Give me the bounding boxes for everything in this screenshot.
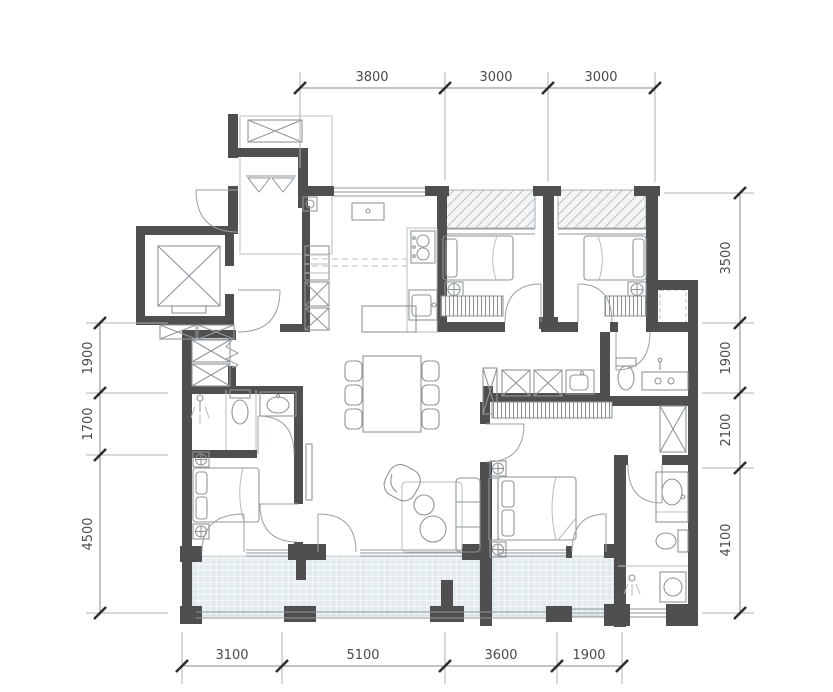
toilet: [230, 390, 250, 424]
dimensions-bottom: 3100 5100 3600 1900: [176, 632, 628, 684]
door-bathroom-shared: [616, 332, 650, 370]
dim-label: 2100: [719, 413, 734, 446]
door-master-entry: [486, 424, 524, 462]
bedroom-top-left: [441, 236, 513, 316]
door-master-balcony: [572, 514, 606, 552]
entry-closet: [192, 340, 230, 386]
bay-window-bedroom2: [558, 190, 646, 234]
master-bathroom: [618, 472, 688, 602]
bedroom-left-window: [246, 550, 288, 556]
kitchen: [303, 197, 437, 332]
dim-label: 3800: [355, 70, 388, 85]
bathroom-left: [191, 390, 296, 450]
dim-label: 3000: [479, 70, 512, 85]
washer: [660, 572, 686, 602]
dim-label: 3500: [719, 241, 734, 274]
dim-label: 1700: [81, 407, 96, 440]
dim-label: 3100: [215, 648, 248, 663]
dimensions-top: 3800 3000 3000: [294, 70, 661, 182]
sink: [260, 392, 296, 416]
water-heater: [352, 203, 384, 220]
door-foyer-inner: [238, 290, 280, 332]
door-bedroom1: [505, 284, 541, 322]
floor-plan-page: 3800 3000 3000 3500 1900 2100 4100 1900 …: [0, 0, 833, 692]
side-table: [420, 516, 446, 542]
vanity-sink: [656, 472, 688, 522]
kitchen-window: [334, 188, 425, 196]
door-bathroom-left: [258, 416, 294, 454]
doors: [196, 190, 662, 552]
cooktop: [411, 231, 435, 263]
wardrobe: [492, 402, 612, 418]
elevator-door-icon: [246, 176, 296, 192]
toilet: [616, 358, 636, 390]
floor-plan-svg: 3800 3000 3000 3500 1900 2100 4100 1900 …: [0, 0, 833, 692]
door-bedroom-left-balcony: [202, 514, 244, 552]
bathroom-shared: [616, 358, 688, 390]
duct-shaft: [248, 120, 302, 142]
kitchen-island: [362, 306, 416, 332]
dining-chair: [345, 361, 362, 381]
sofa: [456, 478, 480, 552]
bed: [584, 236, 646, 280]
kitchen-sink: [409, 290, 437, 320]
bay-window-bedroom1: [441, 190, 535, 234]
dim-label: 4100: [719, 523, 734, 556]
bed: [193, 468, 259, 522]
master-window: [498, 550, 566, 556]
living-window: [360, 550, 462, 556]
wash-basin: [566, 370, 594, 394]
master-bath-window: [630, 609, 666, 617]
door-master-bathroom: [628, 465, 662, 503]
tv-panel: [306, 444, 312, 500]
dining-chair: [345, 409, 362, 429]
dining-chair: [422, 385, 439, 405]
dim-label: 1900: [81, 341, 96, 374]
dim-label: 3600: [484, 648, 517, 663]
side-table: [414, 495, 434, 515]
dining-table: [363, 356, 421, 432]
shower: [624, 575, 640, 596]
nightstand: [445, 282, 463, 297]
dim-label: 3000: [584, 70, 617, 85]
bed: [443, 236, 513, 280]
dim-label: 4500: [81, 517, 96, 550]
vanity-sink: [642, 358, 688, 390]
nightstand: [490, 542, 506, 557]
dimensions-left: 1900 1700 4500: [81, 317, 168, 619]
nightstand: [628, 282, 646, 297]
bedroom-top-right: [584, 236, 646, 316]
nightstand: [490, 461, 506, 476]
dim-label: 5100: [346, 648, 379, 663]
elevator-shaft: [158, 246, 220, 313]
dressing-cabinet: [660, 406, 686, 452]
dim-label: 1900: [572, 648, 605, 663]
living-room: [380, 460, 480, 552]
toilet: [656, 530, 688, 552]
door-bedroom-left: [260, 504, 298, 542]
dining-chair: [422, 409, 439, 429]
dining-chair: [422, 361, 439, 381]
dining-area: [345, 356, 439, 432]
master-bedroom: [489, 402, 612, 557]
shower: [191, 395, 209, 424]
dining-chair: [345, 385, 362, 405]
dim-label: 1900: [719, 341, 734, 374]
bed: [489, 477, 576, 540]
wardrobe: [441, 296, 503, 316]
